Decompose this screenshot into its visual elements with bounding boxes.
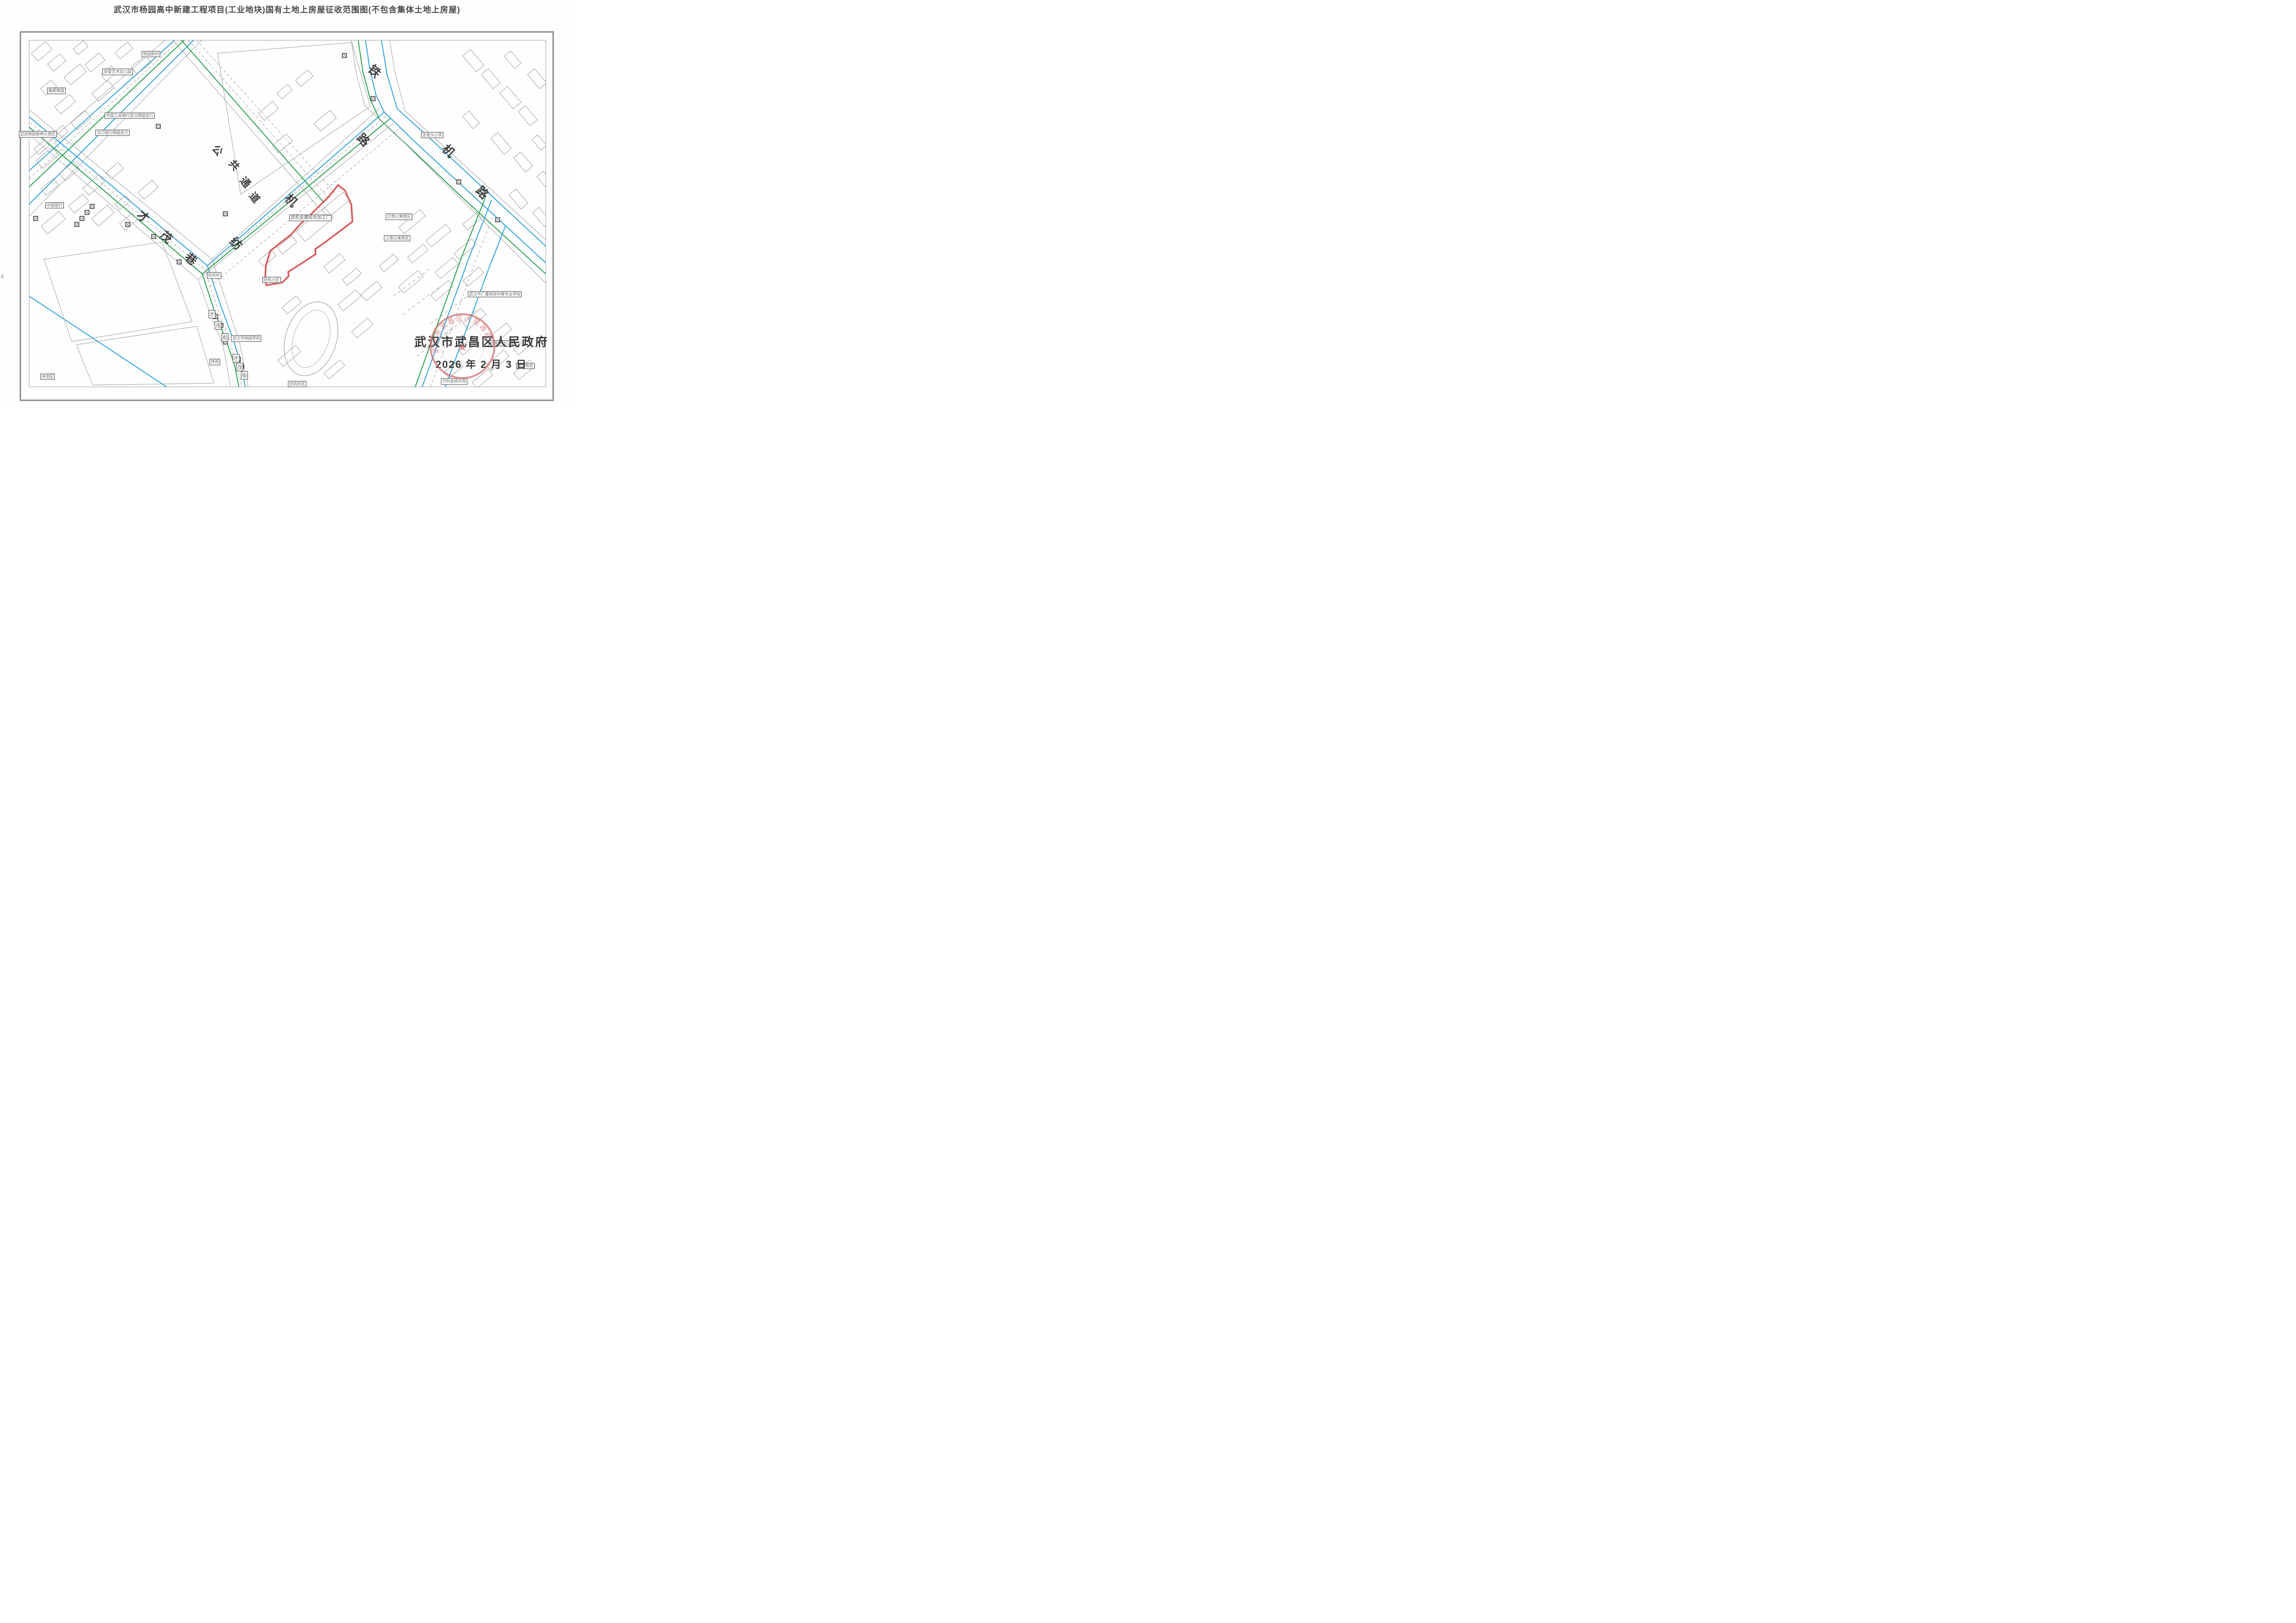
building-outline [83,175,105,195]
building-outline [41,211,65,234]
road-line [28,29,213,218]
building-outline [361,281,382,301]
building-outline [532,135,547,150]
building-outline [314,110,337,131]
building-outline [481,68,500,88]
road-line [24,29,205,209]
building-outline [322,192,349,218]
map-label: 待测区 [40,373,55,379]
building-outline [295,70,313,87]
building-outline [338,290,361,311]
building-outline [115,195,130,210]
road-name-char-才茂街: 茂 [215,321,222,330]
building-outline [463,212,482,230]
building-outline [85,53,105,72]
building-outline [527,68,546,88]
map-label: 纺机村 [207,273,222,279]
building-outline [407,244,428,263]
building-outline [41,179,58,195]
map-label: 待测 [209,359,220,365]
map-label: 武汉市广播电视中等专业学校 [468,291,522,297]
acquisition-boundary [265,185,353,286]
road-name-char-才茂街: 才 [232,354,239,362]
map-label: 武昌杨园柴林头西区 [19,131,57,137]
building-outline [73,41,88,55]
running-track-oval [275,295,347,383]
map-label: 纺机社区 [288,381,306,387]
building-outline [277,84,292,99]
building-outline [509,189,528,209]
building-outline [513,152,532,172]
map-label: 江南公寓南区 [386,214,412,220]
road-line [23,29,192,185]
scanned-map-document: 武汉市杨园高中新建工程项目(工业地块)国有土地上房屋征收范围图(不包含集体土地上… [0,0,574,406]
authority-date: 2026 年 2 月 3 日 [414,356,549,371]
road-line [22,29,187,177]
building-outline [138,180,158,199]
building-outline [119,213,137,230]
parcel-outline [44,242,192,342]
building-outline [296,207,334,242]
page-margin-number: 8 [1,274,4,280]
building-outline [463,50,484,72]
road-line [186,29,337,195]
map-label: 中国银行 [45,202,64,208]
building-outline [92,80,114,101]
building-outline [532,207,551,227]
path-dashed-line [403,287,440,315]
building-outline [258,101,278,120]
building-outline [48,54,66,71]
map-label: 馨都雅园 [47,88,66,94]
building-outline [462,111,479,129]
building-outline [115,42,132,59]
building-outline [324,254,345,274]
road-line [178,29,330,199]
building-outline [106,162,123,179]
map-label: 中国工商银行武汉杨园支行 [105,112,155,118]
building-outline [343,268,362,286]
building-outline [278,345,301,367]
map-label: 余家头小学 [421,132,443,138]
building-outline [537,171,553,189]
building-outline [426,224,451,247]
map-label: 纺机小区 [262,277,281,283]
road-name-char-才茂街: 才 [208,310,215,318]
building-outline [500,87,521,109]
authority-name: 武汉市武昌区人民政府 [414,333,549,350]
building-outline [31,42,52,62]
building-outline [380,254,399,272]
building-outline [272,134,292,153]
road-name-char-才茂街: 街 [222,333,229,342]
road-line [22,121,239,387]
road-line [22,292,167,387]
map-label: 圣婴艺术幼儿园 [102,69,133,75]
parcel-outline [76,326,214,385]
building-outline [463,308,486,330]
map-label: 杨园新村 [142,51,160,57]
road-name-char-才茂街: 街 [241,371,248,379]
building-outline [351,318,373,338]
map-label: 江南公寓南区 [384,235,411,241]
road-line [209,129,399,287]
building-outline [399,270,424,293]
running-track-inner [285,305,337,372]
site-label: 武机金属综合加工厂 [289,215,332,221]
road-line [23,29,196,193]
road-name-char-才茂街: 茂 [237,363,243,371]
building-outline [504,51,521,68]
building-outline [518,106,537,125]
map-label: 武汉市杨园学校 [231,336,262,342]
map-label: 万科金城华府 [441,379,467,385]
building-outline [55,94,75,114]
building-outline [92,205,114,226]
building-outline [463,267,484,286]
building-outline [491,132,511,154]
road-line [20,29,178,167]
map-label: 汉口银行杨园支行 [95,130,130,136]
building-outline [64,64,87,85]
building-outline [472,369,493,388]
path-dashed-line [393,268,430,296]
building-outline [131,55,151,74]
authority-signature-block: 武汉市武昌区人民政府 2026 年 2 月 3 日 [414,333,549,371]
